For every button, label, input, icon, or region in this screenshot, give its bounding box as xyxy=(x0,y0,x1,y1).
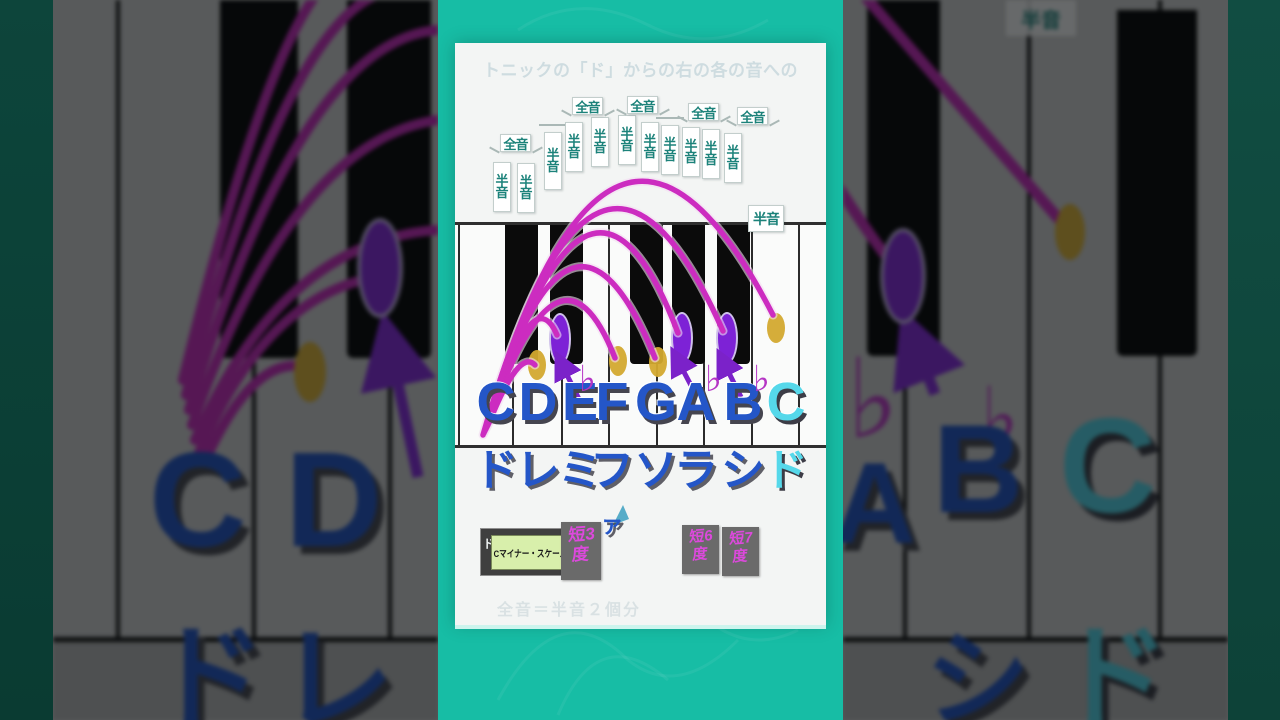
half-tone-char: 音 xyxy=(684,152,697,164)
interval-badge-minor3rd: 短3度 xyxy=(561,522,601,580)
half-tone-column: 半音 xyxy=(517,163,535,213)
dark-overlay xyxy=(843,0,1228,720)
interval-badge-minor7th: 短7度 xyxy=(722,527,759,576)
half-step-bracket xyxy=(539,124,567,126)
note-letter: D xyxy=(516,375,560,429)
solfege-label: ド xyxy=(473,449,519,493)
dark-overlay xyxy=(53,0,438,720)
solfege-label: シ xyxy=(720,449,766,493)
half-tone-char: 音 xyxy=(546,161,559,173)
half-tone-char: 音 xyxy=(593,142,606,154)
note-letter: F xyxy=(590,375,634,429)
faint-footnote: 全音＝半音２個分 xyxy=(497,596,641,620)
note-letter: C xyxy=(474,375,518,429)
half-tone-char: 音 xyxy=(663,150,676,162)
scale-name-label: Cマイナー・スケール xyxy=(492,546,567,560)
half-tone-char: 音 xyxy=(620,140,633,152)
half-tone-column: 半音 xyxy=(641,122,659,172)
half-tone-char: 音 xyxy=(519,188,532,200)
half-tone-char: 音 xyxy=(704,154,717,166)
whole-tone-label: 全音 xyxy=(737,107,768,125)
lesson-panel: トニックの「ド」からの右の各の音への 半音半音半音半音半音半音半音半音半音半音半… xyxy=(455,43,826,625)
blurred-side-left: C D ド レ xyxy=(53,0,438,720)
half-tone-column: 半音 xyxy=(544,132,562,190)
whole-tone-label: 全音 xyxy=(627,96,658,114)
half-tone-char: 音 xyxy=(726,158,739,170)
half-tone-column: 半音 xyxy=(591,117,609,167)
half-tone-column: 半音 xyxy=(682,127,700,177)
half-tone-column: 半音 xyxy=(493,162,511,212)
blurred-side-right: 半音 ♭ ♭ A B C シ ド xyxy=(843,0,1228,720)
half-tone-column: 半音 xyxy=(618,115,636,165)
video-frame: C D ド レ 半音 xyxy=(0,0,1280,720)
note-letter: C xyxy=(764,375,808,429)
whole-tone-label: 全音 xyxy=(572,97,603,115)
half-tone-label-box: 半音 xyxy=(748,205,784,232)
solfege-label: ド xyxy=(763,449,809,493)
scale-name-box: ド Cマイナー・スケール xyxy=(480,528,566,576)
note-letter: G xyxy=(634,375,678,429)
left-edge-strip xyxy=(0,0,53,720)
flat-symbol: ♭ xyxy=(705,361,722,397)
right-edge-strip xyxy=(1228,0,1280,720)
half-tone-column: 半音 xyxy=(565,122,583,172)
whole-tone-label: 全音 xyxy=(688,103,719,121)
solfege-label: レ xyxy=(515,449,561,493)
half-tone-column: 半音 xyxy=(724,133,742,183)
solfege-label: ラ xyxy=(673,449,719,493)
half-tone-char: 音 xyxy=(567,147,580,159)
scale-name-inner: Cマイナー・スケール xyxy=(491,535,563,570)
whole-tone-label: 全音 xyxy=(500,134,531,152)
half-tone-char: 音 xyxy=(495,187,508,199)
half-tone-char: 音 xyxy=(643,147,656,159)
half-tone-column: 半音 xyxy=(702,129,720,179)
half-tone-column: 半音 xyxy=(661,125,679,175)
interval-badge-minor6th: 短6度 xyxy=(682,525,719,574)
solfege-small-char: ァ xyxy=(601,511,624,537)
